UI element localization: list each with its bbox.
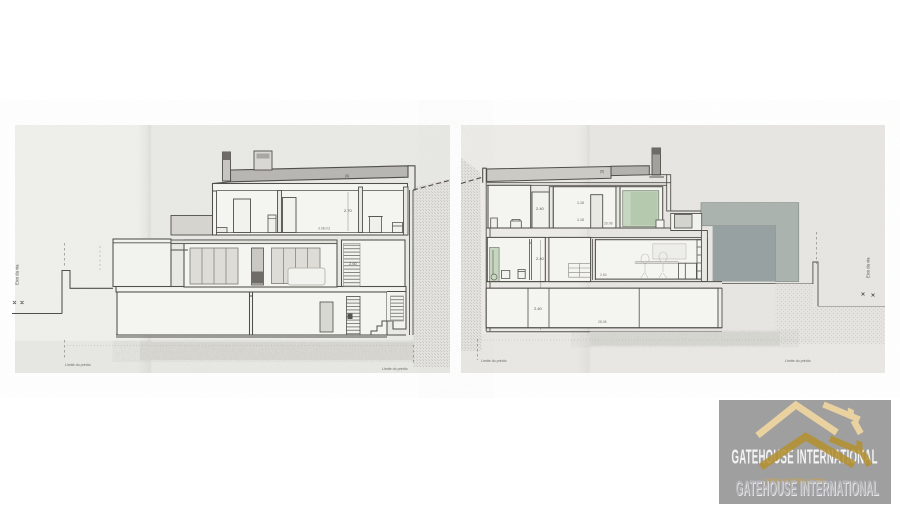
svg-text:Limite do prédio: Limite do prédio: [481, 359, 507, 363]
svg-text:Eixo da via: Eixo da via: [15, 264, 20, 285]
svg-text:2.60: 2.60: [600, 273, 607, 277]
svg-text:(5): (5): [345, 174, 349, 178]
svg-text:Limite do prédio: Limite do prédio: [65, 363, 91, 367]
svg-text:2.40: 2.40: [536, 256, 545, 261]
svg-text:Limite do prédio: Limite do prédio: [785, 359, 811, 363]
svg-text:2.40: 2.40: [534, 306, 543, 311]
svg-text:26.08: 26.08: [604, 222, 613, 226]
svg-text:Limite do prédio: Limite do prédio: [382, 367, 408, 371]
svg-text:GATEHOUSE INTERNATIONAL: GATEHOUSE INTERNATIONAL: [736, 476, 879, 501]
svg-text:2.70: 2.70: [344, 208, 353, 213]
svg-text:28.08: 28.08: [598, 320, 607, 324]
svg-text:(5): (5): [600, 170, 604, 174]
svg-text:2.40: 2.40: [536, 206, 545, 211]
svg-text:2.60: 2.60: [349, 261, 358, 266]
svg-text:3.08 m2: 3.08 m2: [318, 227, 330, 231]
svg-text:1.10: 1.10: [577, 218, 584, 222]
svg-text:1.10: 1.10: [577, 201, 584, 205]
svg-text:Eixo da via: Eixo da via: [866, 257, 871, 278]
